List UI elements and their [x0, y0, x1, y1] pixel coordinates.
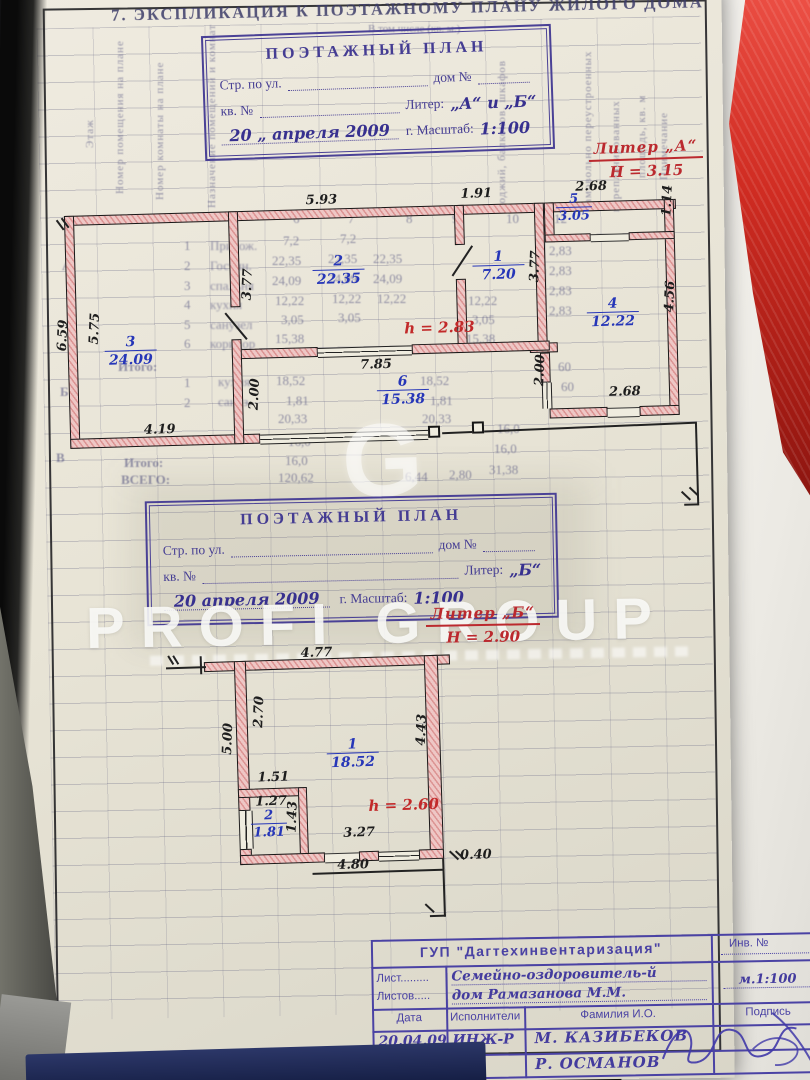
room-number: 1 — [326, 737, 378, 755]
dimension-label: 1.51 — [257, 770, 289, 786]
bg-col-header: Этаж — [84, 78, 96, 148]
extension-hook — [430, 915, 446, 918]
room-label: 3 24.09 — [104, 334, 157, 368]
extension-hook — [684, 503, 698, 505]
extension-line — [442, 859, 446, 917]
dimension-label: 5.00 — [220, 723, 236, 755]
door-opening — [542, 382, 553, 408]
dimension-label: 3.77 — [240, 268, 256, 300]
floor-plan-liter-b: 4.77 2.70 5.00 4.43 1.51 1.27 1.43 3.27 … — [165, 635, 509, 950]
wall — [549, 407, 607, 419]
door-opening — [591, 233, 629, 242]
scale-value: м.1:100 — [723, 971, 810, 989]
door-swing — [452, 245, 473, 276]
stamp-scale-label: г. Масштаб: — [406, 121, 474, 139]
room-label: 1 18.52 — [326, 737, 379, 772]
tick-mark — [681, 491, 691, 501]
stamp-title: ПОЭТАЖНЫЙ ПЛАН — [218, 35, 535, 68]
dotted-line — [231, 539, 433, 557]
room-label: 4 12.22 — [586, 296, 639, 330]
room-area: 7.20 — [472, 265, 524, 283]
stamp-house-label: дом № — [438, 536, 476, 553]
dimension-label: 2.70 — [251, 696, 267, 728]
floor-plan-stamp-a: ПОЭТАЖНЫЙ ПЛАН Стр. по ул. дом № кв. № Л… — [201, 24, 555, 161]
liter-b-label: Литер „Б“ — [425, 603, 540, 627]
room-label: 1 7.20 — [472, 249, 525, 283]
surname-2: Р. ОСМАНОВ — [535, 1053, 661, 1073]
room-area: 3.05 — [556, 207, 592, 224]
dimension-label: 5.75 — [87, 313, 103, 345]
room-number: 6 — [376, 374, 428, 391]
wall — [639, 405, 679, 416]
dimension-label: 4.77 — [300, 645, 332, 661]
dimension-label: 6.59 — [55, 319, 71, 351]
dimension-label: 1.14 — [659, 184, 675, 216]
wall — [232, 347, 318, 359]
window — [379, 850, 419, 861]
sheet-label: Лист......... — [376, 972, 429, 985]
dimension-label: 2.68 — [609, 384, 641, 400]
stamp-liter-label: Литер: — [405, 96, 444, 113]
room-number: 2 — [250, 808, 286, 825]
stamp-title: ПОЭТАЖНЫЙ ПЛАН — [162, 503, 540, 533]
room-area: 1.81 — [251, 824, 287, 841]
room-area: 24.09 — [105, 350, 157, 368]
wall — [419, 849, 444, 860]
dimension-label: 2.00 — [532, 354, 548, 386]
room-label: 2 22.35 — [312, 254, 365, 288]
tick-mark — [200, 656, 203, 674]
signature — [654, 1008, 810, 1075]
dotted-line — [477, 69, 529, 85]
dimension-label: 4.56 — [662, 280, 678, 312]
room-label: 5 3.05 — [555, 191, 592, 224]
dimension-label: 3.27 — [343, 825, 375, 841]
wall-post — [428, 426, 440, 438]
stamp-apt-label: кв. № — [163, 568, 196, 585]
room-number: 1 — [472, 249, 524, 266]
dimension-label: 5.93 — [305, 192, 337, 208]
wall — [240, 852, 325, 865]
dotted-line — [721, 940, 809, 955]
stamp-liter-value: „А“ и „Б“ — [450, 94, 537, 111]
window — [318, 345, 412, 358]
dimension-label: 0.40 — [460, 847, 492, 863]
dimension-label: 3.77 — [527, 250, 543, 282]
liter-a-label: Литер „А“ — [588, 136, 702, 162]
stamp-scale-value: 1:100 — [479, 121, 530, 137]
stamp-liter-value: „Б“ — [509, 563, 541, 578]
door-opening — [607, 407, 639, 418]
dimension-label: 4.43 — [414, 714, 430, 746]
dotted-line — [202, 565, 459, 584]
dimension-line — [313, 869, 443, 875]
wall — [545, 233, 591, 242]
room-number: 2 — [312, 254, 364, 271]
stamp-date-value: 20 „ апреля 2009 — [221, 123, 398, 145]
photo-of-document: Этаж Номер помещения на плане Номер комн… — [0, 0, 810, 1080]
wall — [424, 655, 444, 859]
dimension-label: 2.00 — [247, 378, 263, 410]
ceiling-height-note: h = 2.60 — [368, 795, 439, 815]
dotted-line — [483, 537, 535, 552]
bg-col-header: Номер помещения на плане — [114, 34, 126, 194]
terrace-post — [472, 421, 484, 433]
stamp-apt-label: кв. № — [220, 102, 253, 119]
bg-col-header: Номер комнаты на плане — [154, 40, 166, 200]
room-label: 2 1.81 — [250, 808, 287, 841]
dimension-label: 7.85 — [360, 357, 392, 373]
dimension-label: 1.91 — [460, 186, 492, 202]
dimension-label: 4.19 — [144, 422, 176, 438]
sheets-label: Листов..... — [377, 990, 431, 1003]
stamp-house-label: дом № — [433, 69, 472, 86]
room-number: 4 — [586, 296, 638, 313]
stamp-liter-label: Литер: — [464, 562, 503, 579]
room-area: 12.22 — [587, 312, 639, 330]
room-area: 18.52 — [327, 753, 380, 772]
dotted-line — [259, 99, 400, 118]
room-number: 3 — [104, 334, 156, 351]
room-area: 22.35 — [313, 270, 365, 288]
dimension-label: 4.80 — [337, 857, 369, 873]
wall — [454, 205, 465, 245]
room-number: 5 — [555, 191, 591, 208]
wall — [228, 211, 241, 307]
wall — [629, 231, 675, 240]
col-header-executor: Исполнители — [446, 1010, 524, 1023]
stamp-street-label: Стр. по ул. — [163, 542, 225, 559]
tick-mark — [425, 903, 435, 913]
door-swing — [224, 312, 247, 339]
ceiling-height-note: h = 2.83 — [404, 318, 475, 338]
col-header-date: Дата — [372, 1012, 446, 1025]
stamp-street-label: Стр. по ул. — [219, 75, 282, 93]
dotted-line — [287, 72, 427, 91]
